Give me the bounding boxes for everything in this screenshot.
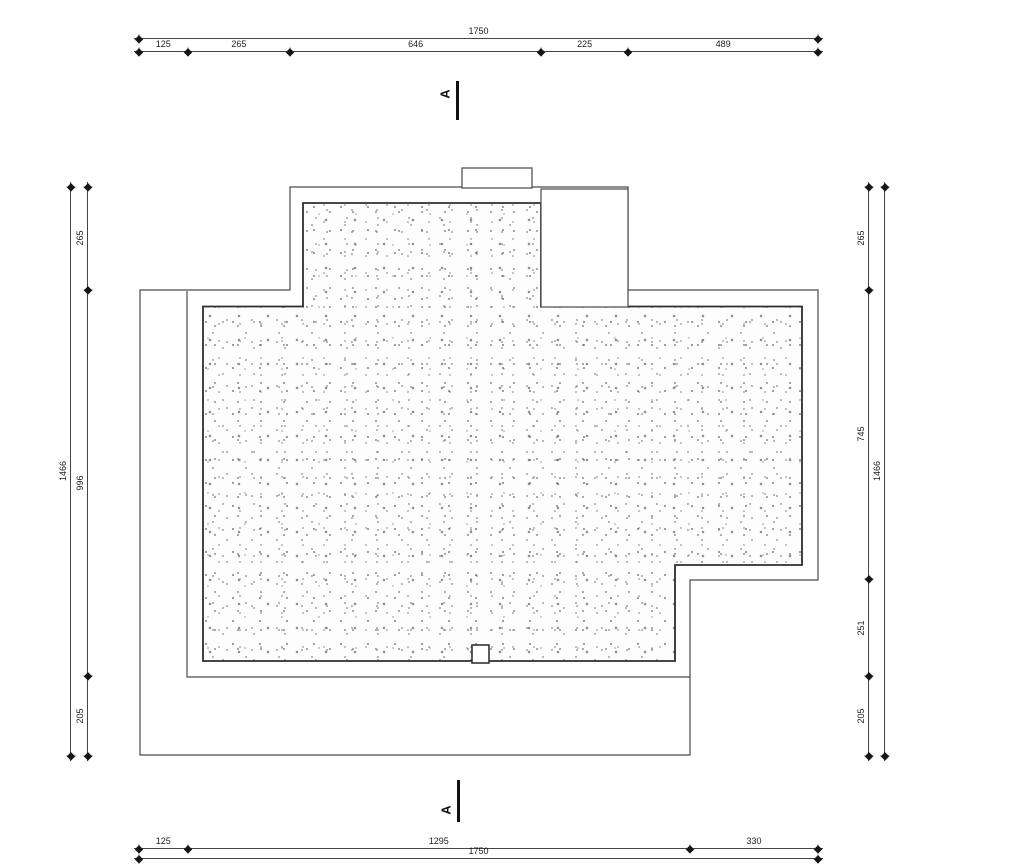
dim-line [884, 182, 885, 761]
dim-right-total: 1466 [0, 0, 1023, 864]
dim-label: 1466 [872, 461, 882, 481]
drawing-canvas: A A 1750 125265646225489 1251295330 1750… [0, 0, 1023, 864]
dim-tick-icon [881, 752, 889, 760]
dim-tick-icon [881, 183, 889, 191]
